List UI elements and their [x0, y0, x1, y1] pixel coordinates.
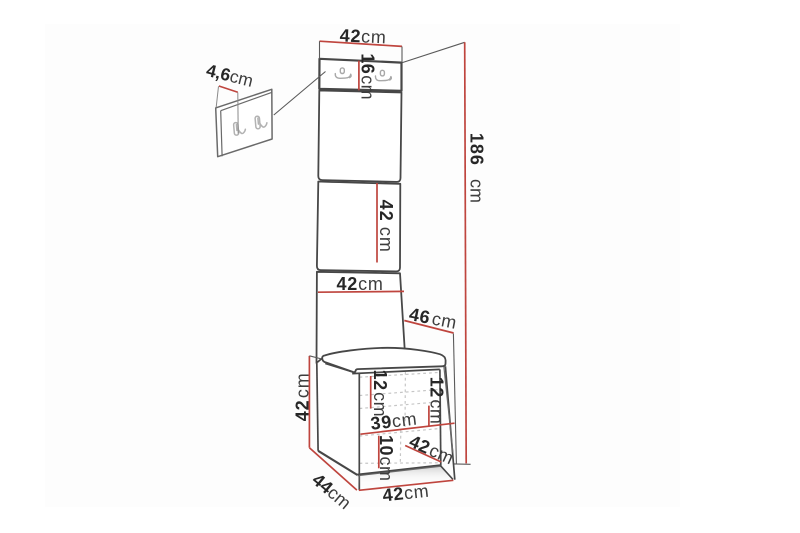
- svg-text:42cm: 42cm: [339, 25, 387, 47]
- svg-text:10cm: 10cm: [376, 435, 396, 482]
- svg-text:12cm: 12cm: [370, 370, 390, 418]
- svg-text:16cm: 16cm: [358, 53, 378, 100]
- svg-text:42cm: 42cm: [292, 372, 312, 421]
- svg-text:42cm: 42cm: [337, 274, 384, 294]
- svg-text:12cm: 12cm: [427, 377, 447, 425]
- svg-text:42cm: 42cm: [376, 200, 396, 253]
